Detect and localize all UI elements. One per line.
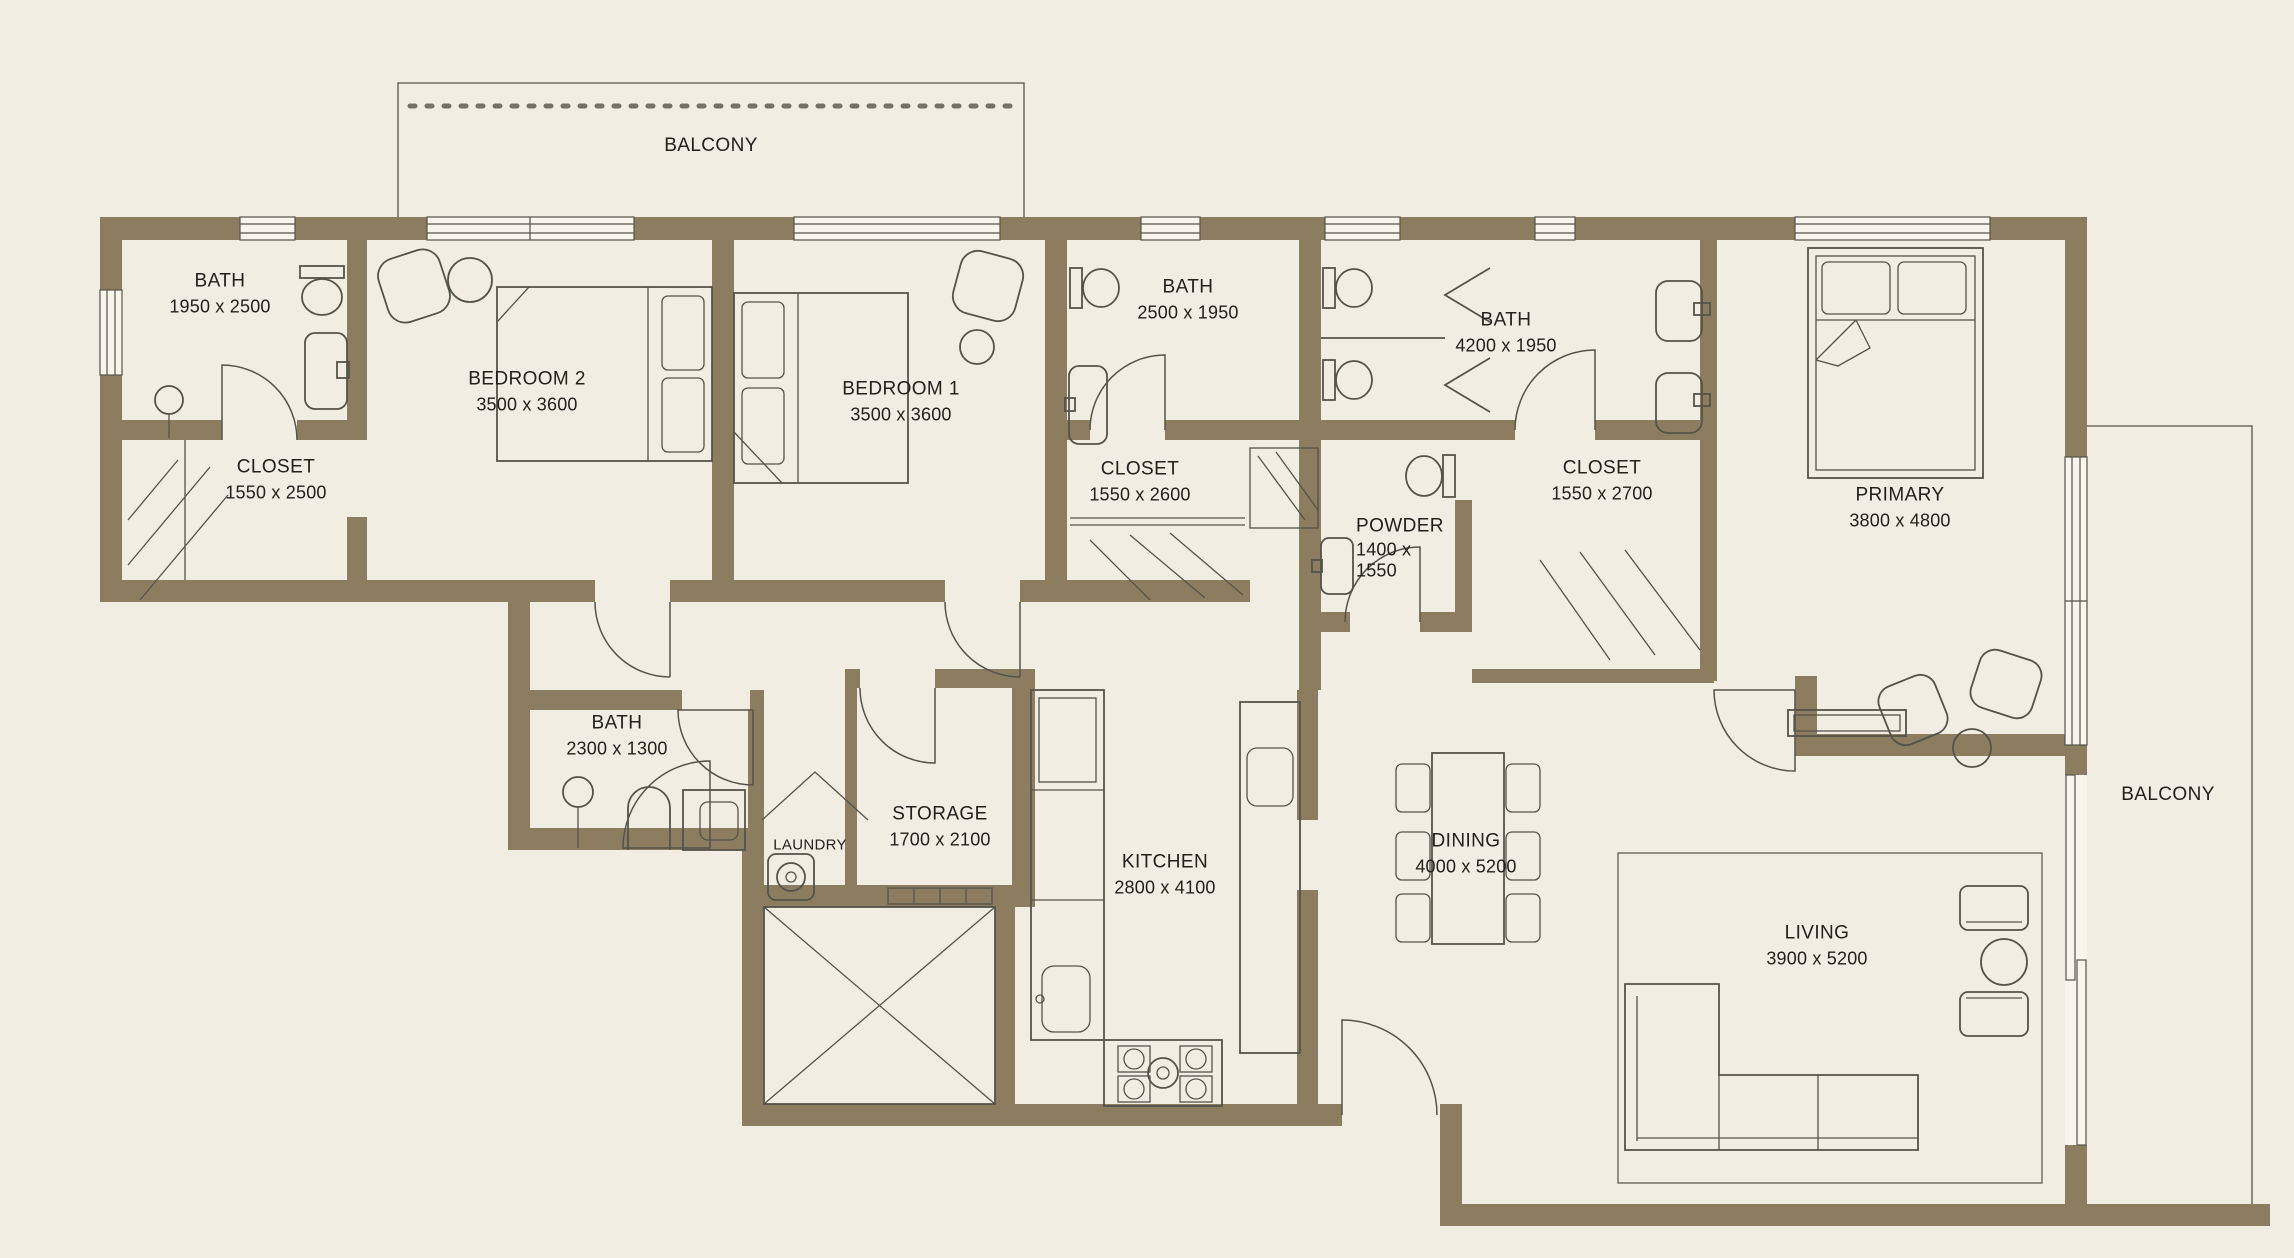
room-label-bedroom1: BEDROOM 13500 x 3600	[842, 379, 960, 426]
room-label-powder: POWDER1400 x 1550	[1356, 515, 1448, 580]
walls	[100, 217, 2270, 1226]
room-label-bath-top-left: BATH1950 x 2500	[169, 271, 270, 318]
floor-plan-drawing	[0, 0, 2294, 1258]
room-label-bedroom2: BEDROOM 23500 x 3600	[468, 369, 586, 416]
room-label-bath-mid: BATH2500 x 1950	[1137, 277, 1238, 324]
room-label-balcony-top: BALCONY	[664, 135, 758, 157]
room-label-kitchen: KITCHEN2800 x 4100	[1114, 852, 1215, 899]
room-label-bath-double: BATH4200 x 1950	[1455, 310, 1556, 357]
room-label-dining: DINING4000 x 5200	[1415, 831, 1516, 878]
toilet-icon	[300, 266, 1455, 850]
room-label-bath-small: BATH2300 x 1300	[566, 713, 667, 760]
room-label-balcony-right: BALCONY	[2121, 784, 2215, 806]
room-label-closet-mid: CLOSET1550 x 2600	[1089, 459, 1190, 506]
room-label-closet-top-left: CLOSET1550 x 2500	[225, 457, 326, 504]
room-label-living: LIVING3900 x 5200	[1766, 923, 1867, 970]
room-label-laundry: LAUNDRY	[773, 836, 847, 853]
room-label-storage: STORAGE1700 x 2100	[889, 804, 990, 851]
windows	[100, 217, 2087, 1145]
room-label-closet-primary: CLOSET1550 x 2700	[1551, 458, 1652, 505]
stove-icon	[1104, 1040, 1222, 1106]
room-label-primary: PRIMARY3800 x 4800	[1849, 485, 1950, 532]
floor-plan: BATH1950 x 2500 CLOSET1550 x 2500 BEDROO…	[0, 0, 2294, 1258]
shaft-icon	[764, 907, 995, 1104]
sofa-icon	[1618, 853, 2042, 1183]
